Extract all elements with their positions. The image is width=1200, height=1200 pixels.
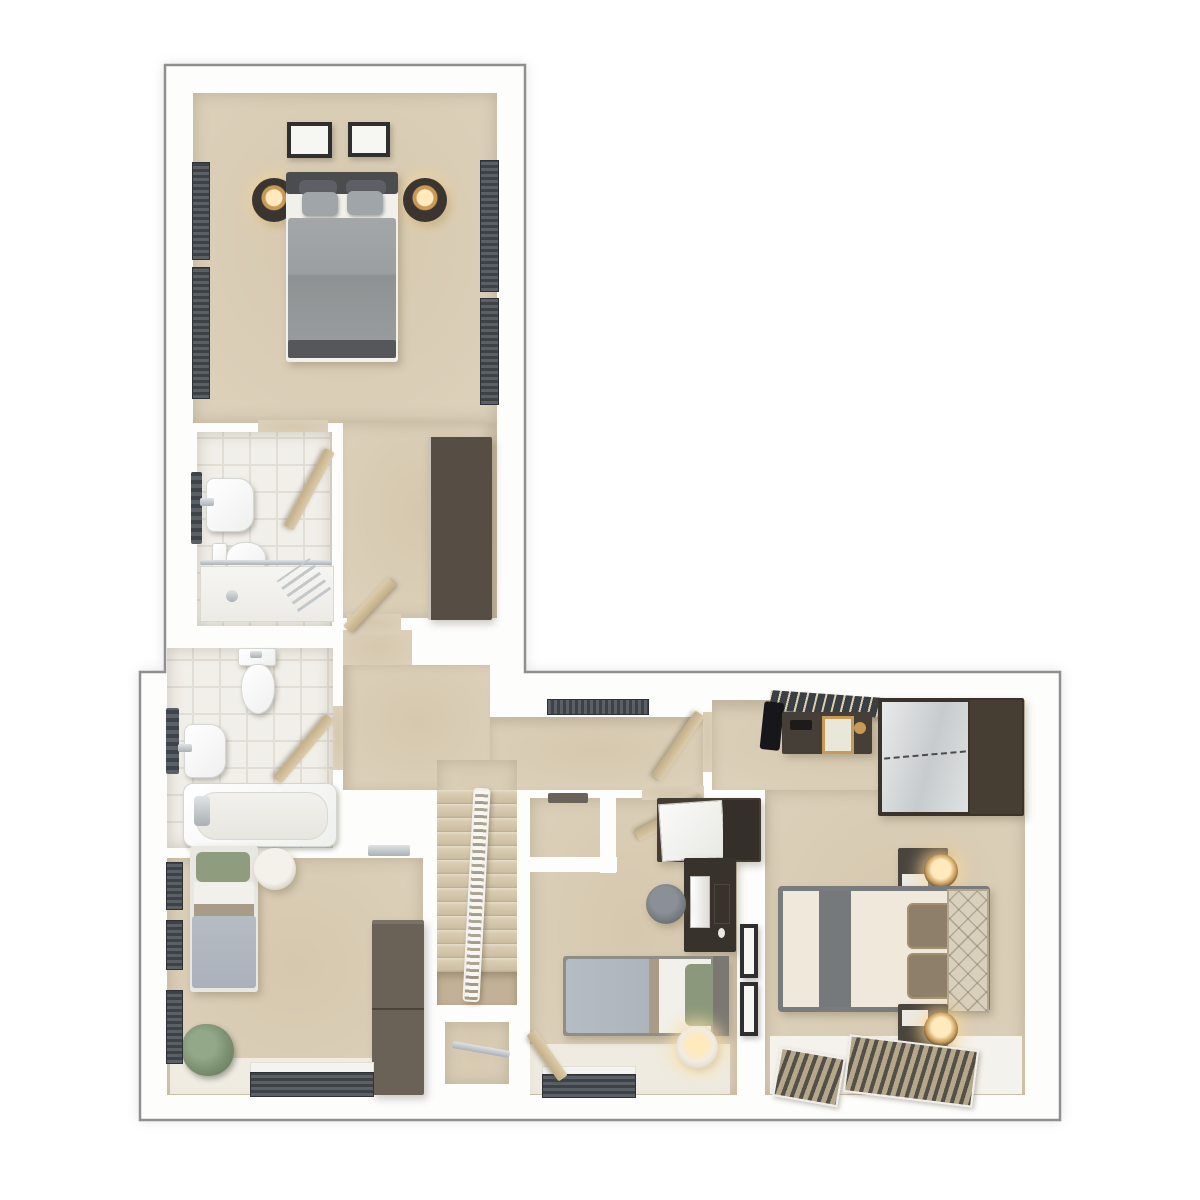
floorplan-canvas [0, 0, 1200, 1200]
bedroom3-headboard [713, 956, 729, 1036]
bathroom-toilet-bowl [241, 664, 275, 714]
bedroom3-duvet [566, 959, 651, 1033]
bedroom2-plant [182, 1024, 234, 1076]
bedroom3-throw [649, 959, 659, 1033]
bedroom2-single-bed [190, 846, 258, 992]
bedroom3-keyboard [714, 884, 730, 924]
bedroom3-side-table [676, 1026, 718, 1068]
bedroom1-pillow-front-right [347, 191, 383, 215]
bathroom-bath-taps [194, 796, 210, 826]
bathroom-basin-tap [178, 744, 192, 752]
bedroom3-cupboard-rail [548, 793, 588, 803]
bedroom1-pillow-front-left [302, 192, 338, 216]
bedroom3-desk [684, 858, 736, 952]
bathroom-bath-inner [196, 792, 328, 840]
bedroom3-cabinet-open-door [658, 800, 726, 862]
bedroom2-sheet [194, 882, 254, 906]
bedroom4-mirror [822, 716, 854, 754]
bedroom4-quilted-headboard [947, 889, 989, 1013]
bedroom4-lamp-top [924, 854, 958, 888]
bedroom1-window-left-1 [192, 162, 210, 260]
bedroom4-lamp-bottom [924, 1012, 958, 1046]
bedroom1-wall-art-left [287, 122, 332, 158]
bedroom3-desk-stool [646, 884, 686, 924]
bedroom4-bed-runner [819, 891, 851, 1007]
bedroom1-footboard [288, 340, 396, 358]
bathroom-doorway-carpet [333, 706, 343, 770]
ensuite-towel-radiator [191, 472, 202, 544]
bedroom3-mouse [718, 928, 725, 938]
bedroom1-double-bed [286, 172, 398, 362]
bedroom4-dressing-items [790, 720, 812, 730]
bedroom1-window-left-2 [192, 267, 210, 399]
bedroom1-duvet [288, 218, 396, 344]
bedroom1-nightstand-right [403, 178, 447, 222]
landing-floor-a [343, 630, 412, 670]
bedroom3-single-bed [563, 956, 729, 1036]
ensuite-basin-tap [200, 498, 214, 506]
bedroom2-window-blind [250, 1072, 374, 1097]
bedroom2-duvet [192, 916, 256, 988]
bedroom3-cabinet-side [723, 800, 759, 860]
bedroom2-wardrobe-seam [372, 1008, 424, 1010]
landing-window [547, 699, 649, 715]
bedroom2-door-threshold [368, 845, 410, 856]
ensuite-shower-valve [226, 590, 238, 602]
bedroom2-side-table [254, 848, 296, 890]
bedroom2-window-left-3 [166, 990, 183, 1064]
bedroom1-wardrobe [428, 437, 492, 620]
bedroom3-wall-art-1 [740, 924, 758, 978]
bedroom3-cupboard-wall-h [527, 857, 617, 872]
bedroom2-pillow [196, 852, 250, 882]
bedroom1-window-right-2 [480, 298, 499, 405]
bedroom3-wall-art-2 [740, 982, 758, 1036]
bedroom4-dressing-tray [854, 722, 866, 734]
bedroom1-window-right-1 [480, 160, 499, 292]
bathroom-toilet-flush [250, 651, 262, 658]
bedroom4-double-bed [778, 886, 990, 1012]
bedroom2-window-left-1 [166, 862, 183, 910]
bedroom2-window-left-2 [166, 920, 183, 970]
bathroom-towel-radiator [166, 708, 179, 774]
bedroom4-sliding-wardrobe [878, 698, 1024, 816]
bedroom2-wardrobe [372, 920, 424, 1095]
bedroom4-dressing-table [782, 712, 872, 754]
bedroom4-wardrobe-wood-panel [970, 700, 1022, 814]
bedroom3-cabinet [657, 798, 761, 862]
bedroom3-monitor [690, 876, 710, 928]
bedroom4-doorway-carpet [703, 712, 712, 772]
bedroom1-wall-art-right [348, 122, 390, 157]
